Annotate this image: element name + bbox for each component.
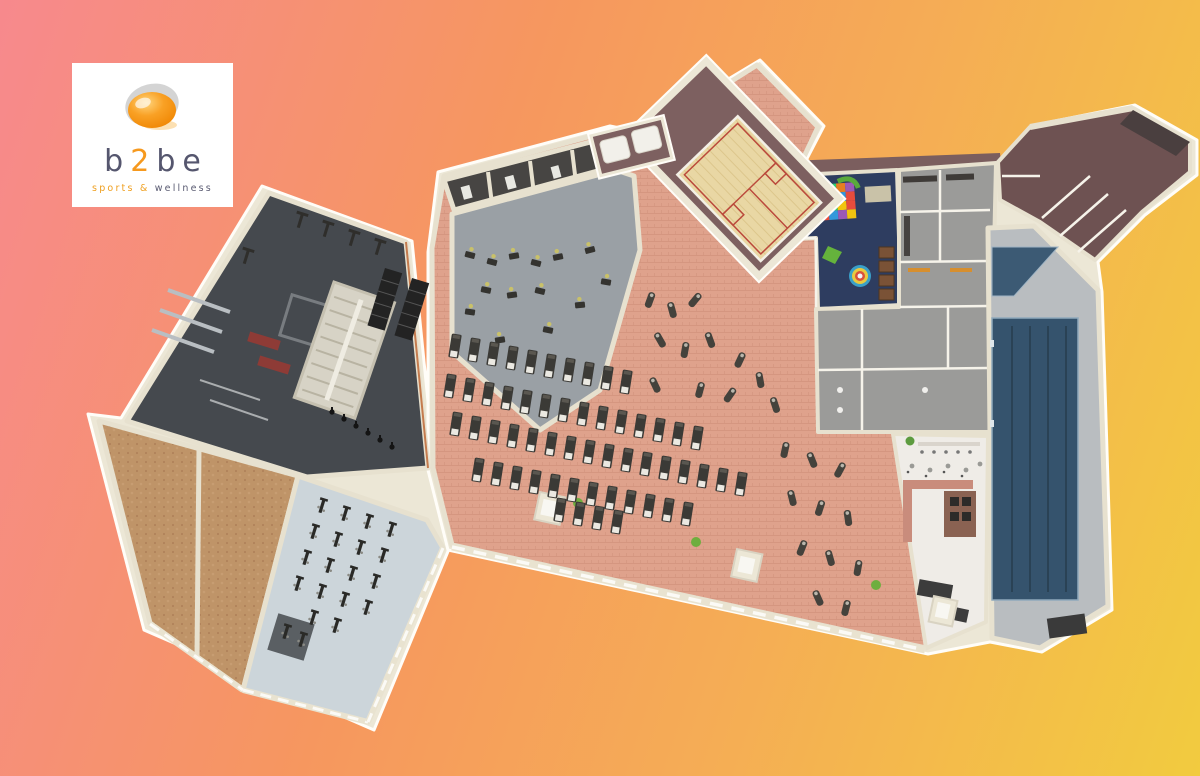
tagline-wellness: wellness [155, 183, 213, 194]
zone-pool [988, 226, 1108, 648]
logo-be: be [156, 144, 208, 179]
cafe-counter-rail [918, 442, 980, 446]
studio-divider-wall [197, 449, 199, 657]
bush [871, 580, 881, 590]
logo-tagline: sports & wellness [72, 183, 233, 194]
mat-rug [865, 185, 892, 202]
logo-card: b2be sports & wellness [72, 63, 233, 207]
logo-wordmark: b2be [72, 147, 233, 177]
round-rug [849, 265, 871, 287]
bush [691, 537, 701, 547]
tagline-sports: sports & [92, 183, 149, 194]
poster-background: b2be sports & wellness [0, 0, 1200, 776]
logo-b1: b [104, 144, 130, 179]
logo-2: 2 [130, 144, 156, 179]
pool-ladder [990, 420, 994, 427]
pool-ladder [990, 340, 994, 347]
plant [906, 437, 915, 446]
b2be-sphere-icon [72, 63, 233, 141]
